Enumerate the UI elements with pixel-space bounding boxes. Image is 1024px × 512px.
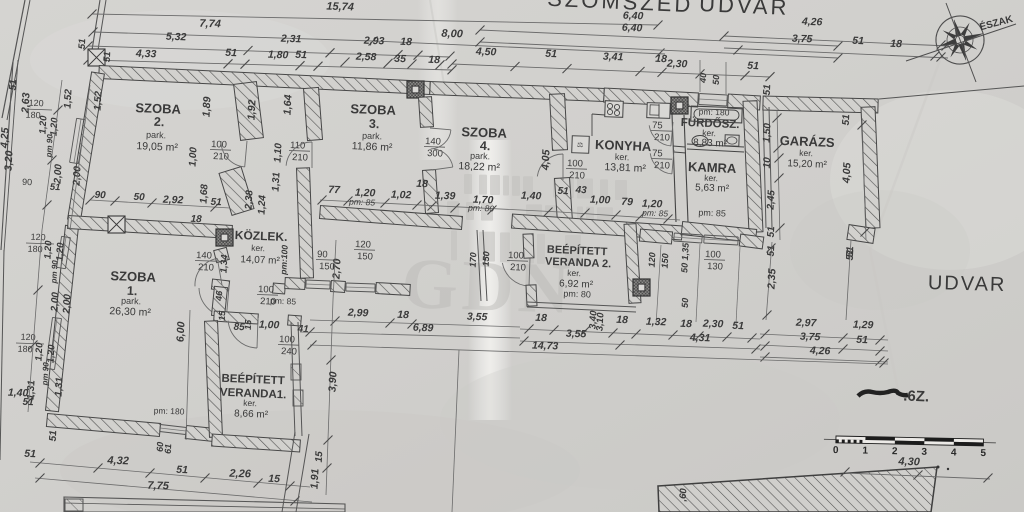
svg-text:7,74: 7,74 [199, 18, 221, 31]
svg-text:6,40: 6,40 [622, 22, 643, 35]
svg-text:1,64: 1,64 [281, 94, 294, 115]
svg-text:15,74: 15,74 [326, 0, 354, 13]
svg-text:2,26: 2,26 [228, 468, 252, 481]
svg-text:75: 75 [652, 148, 663, 159]
svg-text:210: 210 [654, 132, 670, 144]
svg-text:UDVAR: UDVAR [928, 272, 1007, 296]
svg-text:130: 130 [707, 261, 723, 273]
svg-text:120: 120 [647, 252, 658, 268]
svg-text:50: 50 [133, 192, 145, 203]
svg-text:46: 46 [214, 290, 225, 303]
svg-text:5,63 m²: 5,63 m² [695, 182, 730, 194]
svg-text:18: 18 [416, 178, 428, 190]
svg-text:51: 51 [176, 464, 188, 476]
svg-text:51: 51 [295, 49, 307, 61]
svg-text:14,07 m²: 14,07 m² [240, 254, 281, 267]
svg-text:2,99: 2,99 [347, 307, 369, 320]
svg-text:1,20: 1,20 [55, 242, 67, 262]
svg-text:51: 51 [102, 51, 114, 62]
svg-text:4,26: 4,26 [801, 16, 823, 29]
svg-text:2,00: 2,00 [61, 293, 73, 314]
svg-text:0: 0 [833, 445, 839, 456]
svg-text:3,55: 3,55 [467, 311, 488, 324]
svg-text:ker.: ker. [567, 268, 581, 279]
svg-text:pm: 85: pm: 85 [698, 207, 726, 218]
svg-text:15: 15 [217, 310, 228, 322]
svg-text:170: 170 [468, 252, 479, 268]
svg-text:5: 5 [980, 448, 986, 459]
svg-text:4,32: 4,32 [106, 455, 129, 468]
svg-text:1,68: 1,68 [199, 183, 211, 203]
svg-text:50: 50 [680, 298, 691, 309]
svg-text:26,30 m²: 26,30 m² [109, 305, 151, 319]
svg-text:3,75: 3,75 [792, 33, 813, 46]
svg-text:100: 100 [211, 139, 227, 151]
svg-text:51: 51 [747, 60, 759, 72]
svg-text:100: 100 [705, 249, 721, 261]
svg-text:140: 140 [425, 136, 441, 148]
svg-text:,60: ,60 [678, 487, 690, 502]
svg-text:13,81 m²: 13,81 m² [604, 161, 646, 175]
svg-text:4,26: 4,26 [809, 345, 831, 358]
svg-text:2,45: 2,45 [765, 189, 777, 210]
svg-text:2,30: 2,30 [666, 58, 688, 71]
svg-text:15: 15 [314, 451, 326, 463]
svg-text:18: 18 [428, 54, 440, 66]
svg-text:14,73: 14,73 [532, 339, 559, 352]
svg-text:1,20: 1,20 [38, 115, 50, 135]
svg-text:120: 120 [355, 239, 371, 251]
svg-text:51: 51 [545, 48, 557, 60]
svg-text:ker.: ker. [704, 173, 718, 184]
svg-text:210: 210 [292, 152, 308, 164]
svg-text:pm: 180: pm: 180 [154, 405, 185, 416]
svg-text:19,05 m²: 19,05 m² [136, 140, 178, 154]
svg-text:18: 18 [535, 312, 547, 324]
svg-text:3,75: 3,75 [800, 331, 821, 344]
svg-text:3,10: 3,10 [595, 312, 607, 332]
svg-text:2,31: 2,31 [280, 33, 302, 46]
svg-text:51: 51 [841, 114, 853, 126]
svg-text:⚖: ⚖ [577, 141, 584, 149]
svg-text:180: 180 [17, 344, 32, 355]
svg-text:18: 18 [616, 314, 628, 326]
svg-text:7,75: 7,75 [147, 480, 170, 493]
svg-text:100: 100 [567, 158, 583, 170]
svg-text:1,52: 1,52 [93, 90, 105, 110]
svg-text:pm 90: pm 90 [49, 260, 59, 285]
svg-text:51: 51 [856, 334, 868, 346]
svg-text:1,31: 1,31 [271, 171, 283, 191]
svg-text:11,86 m²: 11,86 m² [352, 140, 394, 154]
svg-text:1,89: 1,89 [200, 96, 213, 117]
svg-text:pm: 85: pm: 85 [270, 295, 297, 306]
svg-text:51: 51 [24, 448, 36, 460]
svg-text:2,35: 2,35 [765, 268, 778, 290]
svg-text:15: 15 [268, 473, 280, 485]
svg-text:18: 18 [655, 53, 667, 65]
svg-text:1,32: 1,32 [646, 316, 667, 329]
svg-text:300: 300 [427, 148, 443, 160]
svg-text:51: 51 [557, 186, 569, 197]
svg-text:3,41: 3,41 [603, 51, 624, 64]
svg-text:150: 150 [660, 253, 671, 269]
svg-text:51: 51 [762, 84, 774, 96]
svg-text:pm:100: pm:100 [278, 244, 290, 276]
svg-text:4,31: 4,31 [689, 332, 711, 345]
svg-text:8,66 m²: 8,66 m² [234, 408, 269, 420]
svg-text:51: 51 [77, 38, 89, 49]
svg-text:4,25: 4,25 [0, 127, 12, 149]
svg-text:2,97: 2,97 [795, 317, 818, 330]
svg-text:3,90: 3,90 [326, 371, 339, 392]
svg-text:2,00: 2,00 [49, 291, 61, 312]
svg-text:8,83 m²: 8,83 m² [693, 137, 728, 149]
svg-text:4,30: 4,30 [897, 456, 921, 469]
svg-text:51: 51 [22, 397, 34, 408]
svg-text:100: 100 [279, 334, 295, 346]
svg-text:1,92: 1,92 [245, 99, 258, 120]
svg-text:1,20: 1,20 [46, 344, 58, 364]
svg-text:1,20: 1,20 [43, 240, 55, 260]
svg-text:210: 210 [569, 170, 585, 182]
svg-text:8,00: 8,00 [441, 28, 464, 41]
svg-text:210: 210 [510, 262, 526, 274]
svg-text:2,38: 2,38 [243, 189, 255, 210]
svg-text:18,22 m²: 18,22 m² [458, 160, 500, 174]
svg-text:park.: park. [146, 130, 166, 141]
svg-text:18: 18 [190, 214, 202, 225]
svg-text:77: 77 [328, 184, 341, 197]
svg-text:100: 100 [258, 284, 274, 296]
svg-text:1,00: 1,00 [259, 319, 280, 332]
svg-text:3: 3 [921, 447, 927, 458]
svg-text:1,10: 1,10 [273, 142, 285, 162]
svg-text:150: 150 [481, 251, 492, 267]
svg-text:1,00: 1,00 [188, 146, 200, 166]
svg-text:18: 18 [890, 38, 902, 50]
svg-text:pm: 180: pm: 180 [699, 106, 730, 117]
svg-text:50: 50 [711, 75, 722, 86]
svg-text:pm 90: pm 90 [40, 362, 50, 387]
svg-text:79: 79 [621, 196, 633, 208]
svg-text:18: 18 [680, 318, 692, 330]
svg-text:90: 90 [317, 249, 328, 260]
svg-text:210: 210 [198, 262, 214, 274]
svg-text:1,91: 1,91 [308, 468, 321, 489]
svg-text:50 1,35: 50 1,35 [679, 242, 691, 274]
svg-text:2,70: 2,70 [330, 258, 343, 280]
svg-text:KÖZLEK.: KÖZLEK. [235, 227, 288, 244]
svg-text:pm: 85: pm: 85 [641, 207, 669, 218]
svg-text:pm: 80: pm: 80 [563, 288, 591, 299]
svg-text:3,55: 3,55 [566, 328, 587, 341]
svg-text:51: 51 [766, 245, 778, 257]
svg-text:2,93: 2,93 [363, 35, 385, 48]
svg-text:BEÉPÍTETT: BEÉPÍTETT [221, 372, 285, 388]
svg-text:51: 51 [50, 182, 61, 193]
svg-text:4,05: 4,05 [840, 162, 853, 184]
svg-text:35: 35 [394, 53, 406, 65]
svg-text:51: 51 [852, 35, 864, 47]
svg-text:1,80: 1,80 [268, 49, 289, 62]
svg-text:4,50: 4,50 [475, 46, 497, 59]
svg-text:61: 61 [163, 444, 174, 455]
svg-text:1,24: 1,24 [257, 194, 269, 214]
svg-text:51: 51 [732, 320, 744, 332]
svg-text:140: 140 [196, 250, 212, 262]
svg-text:1,34: 1,34 [219, 254, 231, 274]
svg-text:75: 75 [652, 120, 663, 131]
svg-text:ker.: ker. [251, 243, 265, 254]
svg-text:18: 18 [397, 309, 409, 321]
svg-text:90: 90 [22, 177, 32, 187]
svg-text:SZOBA: SZOBA [110, 268, 157, 285]
svg-text:SZOBA: SZOBA [350, 101, 397, 118]
svg-text:43: 43 [574, 185, 587, 196]
svg-text:1,52: 1,52 [63, 88, 75, 108]
svg-text:1,50: 1,50 [762, 122, 774, 142]
svg-text:1,39: 1,39 [435, 190, 456, 203]
svg-text:150: 150 [357, 251, 373, 263]
svg-text:6,89: 6,89 [413, 322, 434, 335]
svg-text:4,05: 4,05 [539, 149, 552, 171]
svg-text:3,20: 3,20 [2, 150, 15, 171]
svg-text:15,20 m²: 15,20 m² [787, 158, 828, 171]
svg-text:2,58: 2,58 [355, 51, 377, 64]
svg-text:1,29: 1,29 [853, 319, 874, 332]
svg-text:10: 10 [762, 157, 774, 169]
svg-text:51: 51 [225, 47, 237, 59]
svg-text:90: 90 [94, 190, 106, 201]
svg-text:41: 41 [296, 324, 309, 335]
svg-text:5,32: 5,32 [166, 31, 187, 44]
svg-text:18: 18 [400, 36, 412, 48]
svg-text:2.: 2. [154, 115, 165, 129]
svg-text:15: 15 [243, 319, 254, 331]
svg-text:100: 100 [508, 250, 524, 262]
svg-text:ker.: ker. [243, 398, 257, 409]
svg-text:pm: 85: pm: 85 [348, 196, 376, 207]
svg-text:2,92: 2,92 [162, 194, 184, 207]
svg-text:1,02: 1,02 [391, 189, 412, 202]
svg-text:1,40: 1,40 [521, 190, 542, 203]
svg-text:3.: 3. [369, 117, 380, 131]
svg-text:ker.: ker. [799, 148, 813, 159]
svg-text:51: 51 [48, 430, 60, 442]
svg-text:1,00: 1,00 [590, 194, 611, 207]
svg-text:6,00: 6,00 [174, 321, 187, 342]
svg-text:51: 51 [8, 79, 20, 91]
svg-text:1,20: 1,20 [34, 342, 46, 362]
svg-text:120: 120 [28, 98, 43, 109]
svg-text:1: 1 [862, 446, 868, 457]
svg-text:2: 2 [892, 446, 898, 457]
svg-text:2,30: 2,30 [702, 318, 724, 331]
svg-text:51: 51 [210, 197, 222, 208]
svg-text:40: 40 [698, 73, 709, 85]
svg-text:240: 240 [281, 346, 297, 358]
svg-text:1,31: 1,31 [54, 376, 66, 396]
svg-text:4,33: 4,33 [135, 48, 157, 61]
svg-text:4: 4 [951, 447, 957, 458]
svg-text:.6Z.: .6Z. [903, 387, 930, 405]
